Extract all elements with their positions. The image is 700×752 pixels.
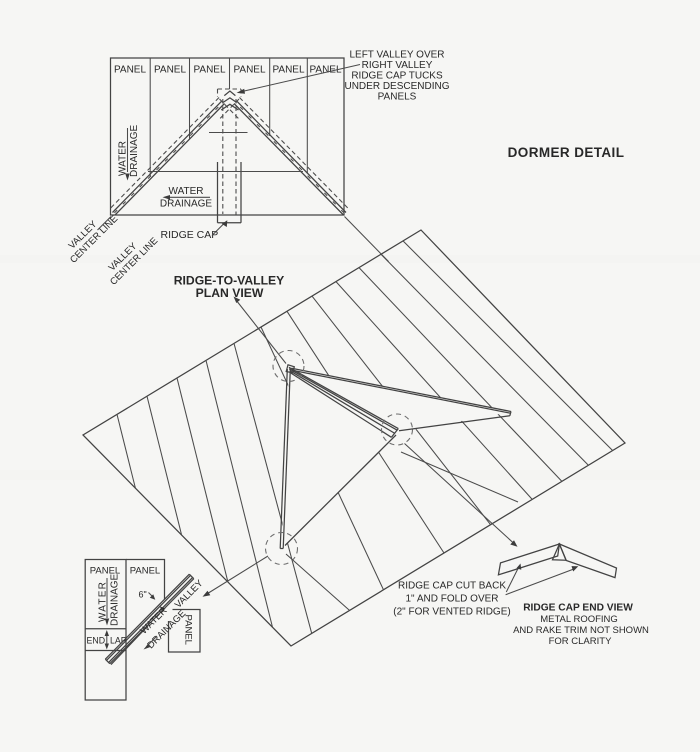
svg-text:METAL ROOFING: METAL ROOFING <box>540 614 618 625</box>
svg-text:FOR CLARITY: FOR CLARITY <box>549 636 612 647</box>
svg-text:6": 6" <box>139 590 147 600</box>
svg-text:LEFT VALLEY OVER: LEFT VALLEY OVER <box>349 50 444 61</box>
svg-text:1" AND FOLD OVER: 1" AND FOLD OVER <box>405 594 498 605</box>
svg-text:UNDER DESCENDING: UNDER DESCENDING <box>344 81 449 92</box>
svg-text:PANEL: PANEL <box>233 65 265 76</box>
svg-text:WATER: WATER <box>118 141 129 176</box>
svg-text:DRAINAGE: DRAINAGE <box>129 124 140 177</box>
svg-text:RIDGE CAP: RIDGE CAP <box>161 229 219 241</box>
svg-text:PANEL: PANEL <box>272 65 304 76</box>
svg-text:DRAINAGE: DRAINAGE <box>110 573 121 626</box>
svg-text:AND RAKE TRIM NOT SHOWN: AND RAKE TRIM NOT SHOWN <box>513 625 649 636</box>
svg-text:DORMER DETAIL: DORMER DETAIL <box>508 145 625 160</box>
svg-text:RIDGE CAP END VIEW: RIDGE CAP END VIEW <box>523 603 633 614</box>
svg-text:END: END <box>87 636 106 646</box>
svg-text:DRAINAGE: DRAINAGE <box>160 199 213 210</box>
svg-text:RIDGE CAP TUCKS: RIDGE CAP TUCKS <box>351 71 443 82</box>
svg-text:WATER: WATER <box>169 186 204 197</box>
svg-text:PANEL: PANEL <box>193 65 225 76</box>
svg-text:PANEL: PANEL <box>114 65 146 76</box>
svg-text:PANELS: PANELS <box>378 92 417 103</box>
svg-text:(2" FOR VENTED RIDGE): (2" FOR VENTED RIDGE) <box>393 607 510 618</box>
svg-text:PANEL: PANEL <box>130 566 160 577</box>
svg-text:PANEL: PANEL <box>154 65 186 76</box>
svg-text:RIDGE CAP CUT BACK: RIDGE CAP CUT BACK <box>398 581 506 592</box>
svg-text:PLAN VIEW: PLAN VIEW <box>196 286 264 300</box>
svg-text:RIGHT VALLEY: RIGHT VALLEY <box>362 60 433 71</box>
